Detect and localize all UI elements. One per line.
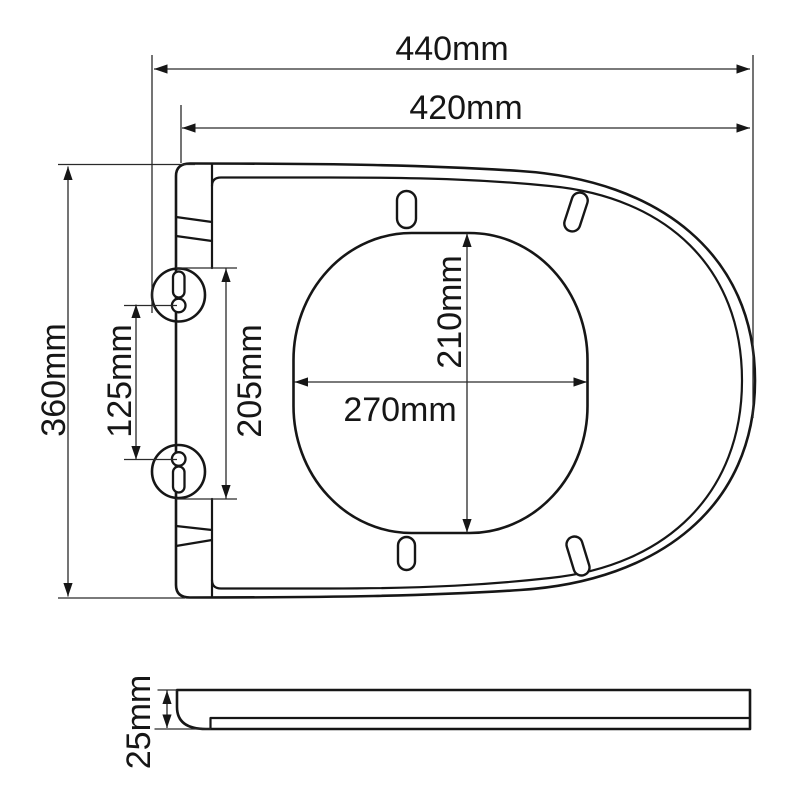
- arrowhead-right: [737, 64, 751, 73]
- bumper-slot-top-left: [397, 191, 416, 228]
- hinge-wedge-line-bottom-1: [176, 526, 212, 530]
- arrowhead-up: [63, 167, 72, 181]
- dim-360-label: 360mm: [35, 323, 73, 436]
- dim-270-label: 270mm: [343, 391, 456, 429]
- toilet-seat-dimension-drawing: 440mm 420mm 360mm 125mm 205mm 210mm: [0, 0, 800, 800]
- dim-125-label: 125mm: [101, 324, 139, 437]
- arrowhead-up: [462, 234, 471, 248]
- arrowhead-right: [574, 377, 588, 386]
- bumper-slot-top-right: [562, 191, 590, 234]
- arrowhead-left: [295, 377, 309, 386]
- arrowhead-up: [221, 269, 230, 283]
- technical-drawing-page: 440mm 420mm 360mm 125mm 205mm 210mm: [0, 0, 800, 800]
- seat-inner-contour: [212, 178, 742, 589]
- side-profile-outline: [177, 690, 750, 729]
- arrowhead-down: [462, 519, 471, 533]
- arrowhead-right: [737, 123, 751, 132]
- dimension-205: 205mm: [176, 268, 269, 499]
- hinge-wedge-line-top-2: [176, 236, 212, 241]
- arrowhead-left: [154, 64, 168, 73]
- bumper-slot-bottom-left: [398, 537, 415, 570]
- dim-205-label: 205mm: [231, 324, 269, 437]
- hinge-slot-bottom: [173, 467, 185, 493]
- dimension-420: 420mm: [181, 89, 750, 163]
- bumper-slot-bottom-right: [565, 535, 592, 578]
- arrowhead-down: [63, 583, 72, 597]
- dimension-270: 270mm: [295, 377, 588, 429]
- arrowhead-down: [131, 446, 140, 460]
- arrowhead-up: [162, 691, 171, 705]
- hinge-slot-top: [173, 272, 185, 298]
- dimension-125: 125mm: [101, 305, 177, 460]
- dimension-210: 210mm: [431, 234, 472, 533]
- dim-210-label: 210mm: [431, 255, 469, 368]
- hinge-wedge-line-bottom-2: [176, 540, 212, 546]
- side-profile-inner-edge: [211, 718, 751, 728]
- dim-420-label: 420mm: [409, 89, 522, 127]
- dim-440-label: 440mm: [395, 30, 508, 68]
- arrowhead-up: [131, 305, 140, 319]
- arrowhead-down: [221, 485, 230, 499]
- arrowhead-down: [162, 715, 171, 729]
- side-view: [177, 690, 750, 729]
- dim-25-label: 25mm: [120, 675, 158, 769]
- hinge-wedge-line-top-1: [176, 217, 212, 222]
- arrowhead-left: [182, 123, 196, 132]
